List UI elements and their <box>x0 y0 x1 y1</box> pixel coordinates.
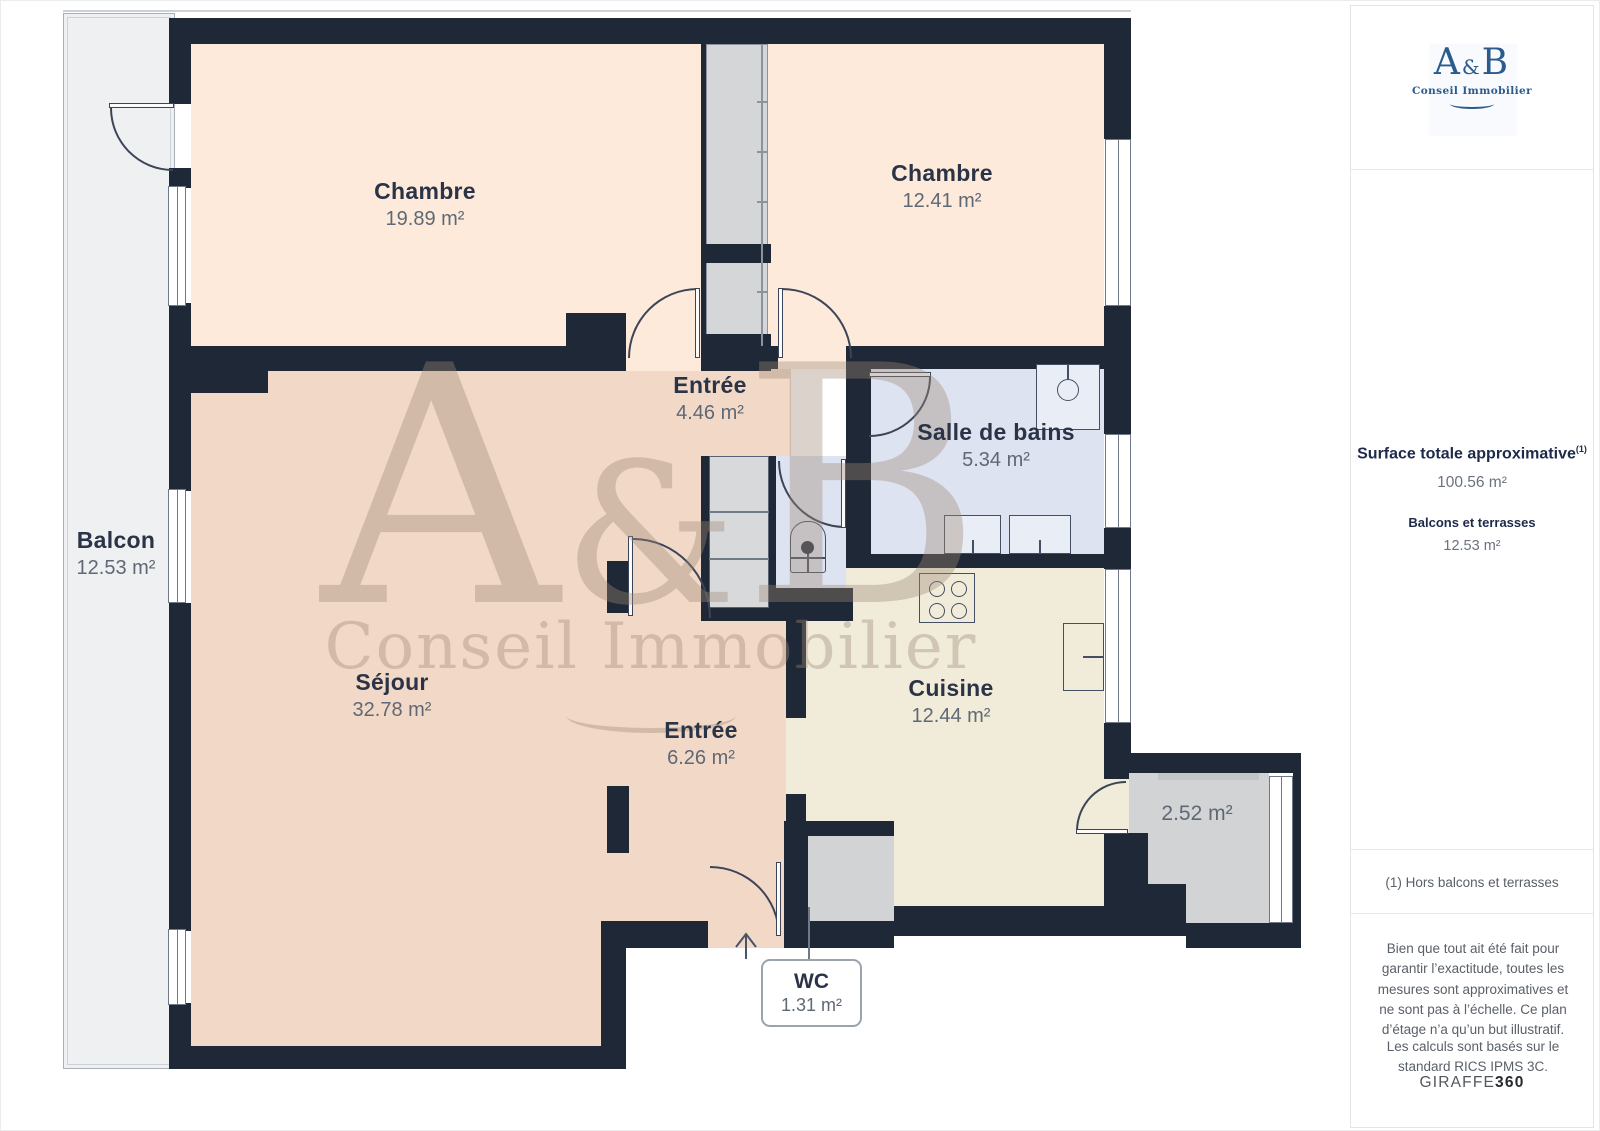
wall-segment <box>1104 528 1131 569</box>
window-mullion-line <box>1281 777 1282 922</box>
room-label-sejour: Séjour 32.78 m² <box>353 669 432 722</box>
surface-total-value: 100.56 m² <box>1351 474 1593 492</box>
wall-segment <box>1104 723 1131 761</box>
shaft-tick <box>757 201 767 203</box>
window <box>168 186 186 306</box>
agency-logo-brand: A&B <box>1351 42 1593 83</box>
wall-segment <box>771 346 778 369</box>
wc-leader-line <box>808 907 810 959</box>
window-mullion-line <box>1118 570 1119 722</box>
shaft-tick <box>757 151 767 153</box>
wall-segment <box>1104 833 1148 936</box>
sidebar-divider <box>1351 849 1593 850</box>
closet-shelf-line <box>709 511 769 513</box>
agency-logo-tagline: Conseil Immobilier <box>1351 85 1593 97</box>
wall-segment <box>846 346 871 568</box>
balcony-door-leaf <box>109 103 174 108</box>
hob-burner <box>951 581 967 597</box>
sejour-door-leaf <box>628 536 633 616</box>
wc-closet-door-leaf <box>841 459 846 528</box>
wall-segment <box>852 554 1104 568</box>
wall-segment <box>169 18 191 104</box>
appliance-handle-line <box>1083 656 1104 658</box>
wall-segment <box>1104 761 1129 779</box>
standard-text: Les calculs sont basés sur le standard R… <box>1374 1037 1572 1078</box>
wall-segment <box>784 821 894 836</box>
bathroom-door-leaf <box>869 372 931 377</box>
agency-logo: A&B Conseil Immobilier <box>1351 42 1593 109</box>
surface-total-superscript: (1) <box>1576 444 1587 454</box>
wc-callout: WC 1.31 m² <box>761 959 862 1027</box>
wall-segment <box>169 168 191 188</box>
room-label-chambre-right: Chambre 12.41 m² <box>891 160 993 213</box>
hob-burner <box>929 581 945 597</box>
entry-arrow-icon <box>727 923 767 963</box>
storage-door-leaf <box>1076 829 1128 834</box>
wall-segment <box>1104 306 1131 434</box>
balcony-surface-title: Balcons et terrasses <box>1351 515 1593 530</box>
window-mullion-line <box>1118 140 1119 305</box>
wall-segment <box>169 371 268 393</box>
wall-segment <box>169 18 1131 44</box>
wall-segment <box>1186 923 1301 948</box>
agency-logo-swoosh <box>1450 99 1494 109</box>
wall-segment <box>626 921 708 948</box>
storage-sill <box>1158 773 1259 780</box>
room-label-cuisine: Cuisine 12.44 m² <box>908 675 993 728</box>
chambre-right-door-leaf <box>778 288 783 358</box>
room-label-entree-haut: Entrée 4.46 m² <box>673 372 746 425</box>
sidebar-divider <box>1351 913 1593 914</box>
shaft-tick <box>757 291 767 293</box>
window-mullion-line <box>1118 435 1119 527</box>
room-label-entree-bas: Entrée 6.26 m² <box>664 717 737 770</box>
giraffe360-logo: GIRAFFE360 <box>1351 1074 1593 1092</box>
toilet-dot <box>801 541 814 554</box>
wall-segment <box>1293 753 1301 948</box>
wall-segment <box>607 561 629 613</box>
closet-shelf-line <box>709 558 769 560</box>
sidebar: A&B Conseil Immobilier Surface totale ap… <box>1350 5 1594 1128</box>
room-label-chambre-left: Chambre 19.89 m² <box>374 178 476 231</box>
shower-drain-icon <box>1057 379 1079 401</box>
cuisine-doorway-floor <box>786 718 806 794</box>
sink-left-tap-line <box>972 540 974 554</box>
shaft-glass-line <box>761 44 763 346</box>
entry-door-leaf <box>776 862 781 936</box>
sidebar-divider <box>1351 169 1593 170</box>
wall-segment <box>1148 884 1186 936</box>
wall-segment <box>786 621 806 718</box>
shaft-floor <box>706 44 768 346</box>
room-label-balcon: Balcon 12.53 m² <box>77 527 156 580</box>
hob <box>919 573 975 623</box>
balcony-surface-value: 12.53 m² <box>1351 538 1593 554</box>
footnote: (1) Hors balcons et terrasses <box>1351 875 1593 890</box>
window <box>1105 434 1131 528</box>
surface-total-title: Surface totale approximative(1) <box>1351 444 1593 463</box>
wall-segment <box>894 906 1104 936</box>
wall-segment <box>566 313 626 371</box>
wall-segment <box>784 836 808 936</box>
wall-segment <box>169 603 191 931</box>
room-label-rangement: 2.52 m² <box>1161 799 1232 826</box>
window <box>168 929 186 1005</box>
wall-segment <box>169 1046 624 1069</box>
disclaimer-text: Bien que tout ait été fait pour garantir… <box>1374 939 1572 1040</box>
window-mullion-line <box>177 490 178 602</box>
wall-segment <box>701 44 706 346</box>
window-mullion-line <box>177 187 178 305</box>
wall-segment <box>169 346 566 371</box>
wall-segment <box>607 786 629 853</box>
wall-segment <box>1104 18 1131 139</box>
wall-segment <box>701 608 769 621</box>
window <box>168 489 186 603</box>
window <box>1105 139 1131 306</box>
closet-floor <box>709 456 769 608</box>
window <box>1105 569 1131 723</box>
wc-room-floor <box>808 826 894 921</box>
room-label-salle-de-bains: Salle de bains 5.34 m² <box>917 419 1075 472</box>
floorplan-page: A&B Conseil Immobilier Chambre 19.89 m² … <box>0 0 1600 1131</box>
shaft-tick <box>757 101 767 103</box>
sink-right-tap-line <box>1039 540 1041 554</box>
wall-segment <box>769 456 776 588</box>
wall-segment <box>169 303 191 491</box>
wall-segment <box>769 588 853 621</box>
window <box>1269 776 1293 923</box>
hob-burner <box>929 603 945 619</box>
chambre-left-door-leaf <box>695 288 700 358</box>
wall-segment <box>1129 753 1301 773</box>
hob-burner <box>951 603 967 619</box>
wall-segment <box>601 921 626 1069</box>
window-mullion-line <box>177 930 178 1004</box>
